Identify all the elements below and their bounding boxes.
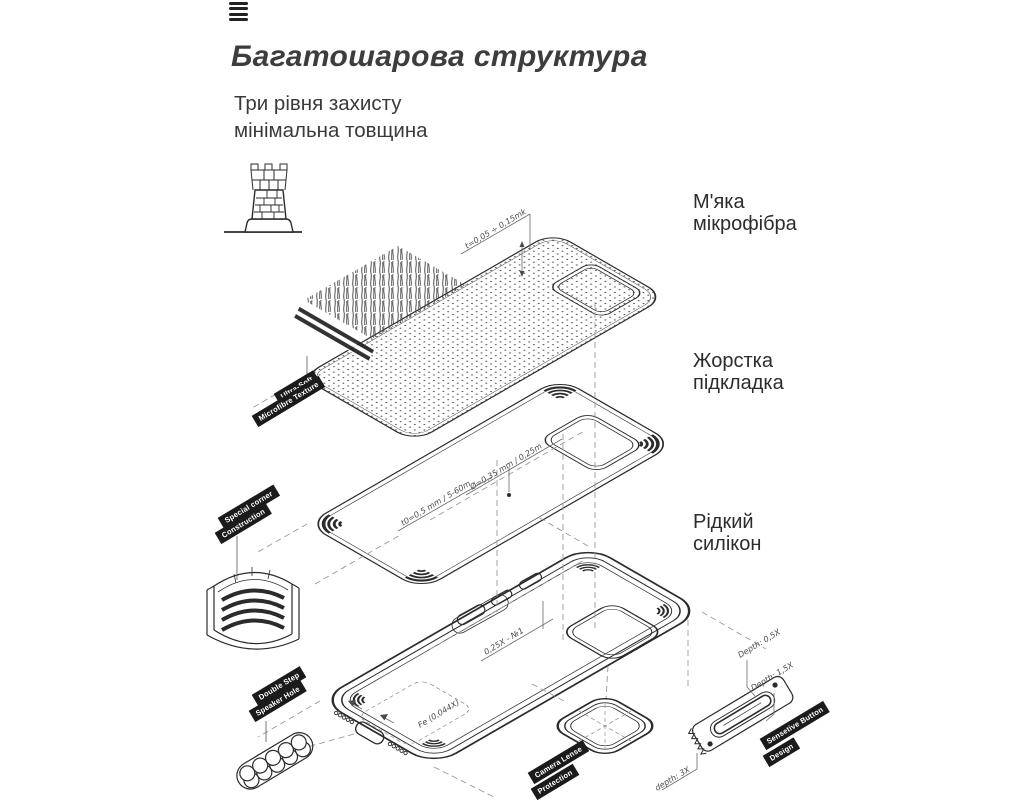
anno-button-offset: 0,25X - №1	[482, 626, 525, 657]
castle-tower-icon	[224, 164, 302, 232]
case-button-cutout-2	[490, 589, 513, 607]
corner-detail	[207, 567, 299, 649]
ring-center-axes	[579, 704, 631, 748]
lining-camera-cutout	[539, 412, 645, 473]
case-button-cutout-3	[518, 572, 543, 591]
case-floor-dashed-zone	[357, 679, 474, 747]
anno-floor-marking: Fe (0,044X)	[416, 698, 461, 730]
anno-button-depth-c: depth: 3X	[653, 765, 692, 793]
layer-microfiber	[294, 232, 666, 442]
case-camera-cutout	[560, 602, 664, 662]
layer-silicone-case	[320, 545, 703, 766]
anno-microfiber-thickness: t=0,05 ÷ 0,15mk	[463, 207, 528, 251]
anno-button-depth-a: Depth: 0,5X	[736, 627, 782, 660]
exploded-view-diagram: t=0,05 ÷ 0,15mk Ø=0,35 mm / 0,25m t0=0,5…	[0, 0, 1024, 800]
anno-lining-thickness-b: t0=0,5 mm / 5-60m	[399, 479, 472, 528]
speaker-detail	[232, 728, 318, 794]
infographic-page: Багатошарова структура Три рівня захисту…	[0, 0, 1024, 800]
case-bottom-edge	[331, 707, 410, 760]
